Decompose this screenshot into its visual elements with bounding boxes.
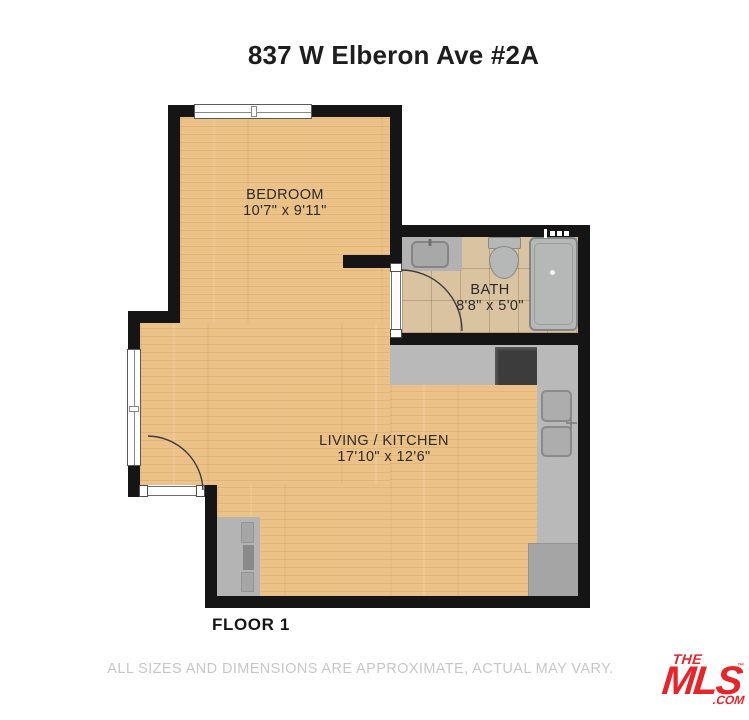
sofa-armrest-bottom <box>241 572 254 592</box>
refrigerator <box>528 543 578 596</box>
bath-sink-basin <box>411 241 449 268</box>
wall-step-vertical <box>205 485 217 608</box>
floor-plan-page: 837 W Elberon Ave #2A <box>0 0 749 720</box>
mls-logo: THE MLS ™ .COM <box>657 651 749 717</box>
bath-label: BATH 8'8" x 5'0" <box>420 283 560 314</box>
wall-bath-bottom <box>390 333 590 345</box>
trademark-icon: ™ <box>736 663 744 670</box>
kitchen-sink-basin-1 <box>541 390 572 422</box>
bedroom-floor-area <box>180 117 390 323</box>
bath-dimensions: 8'8" x 5'0" <box>420 299 560 315</box>
wall-right <box>578 225 590 608</box>
sofa-armrest-top <box>241 522 254 543</box>
disclaimer-text: ALL SIZES AND DIMENSIONS ARE APPROXIMATE… <box>0 661 749 677</box>
bedroom-dimensions: 10'7" x 9'11" <box>185 204 385 220</box>
bath-door-jamb-top <box>390 263 402 272</box>
living-window <box>127 349 141 466</box>
living-kitchen-label: LIVING / KITCHEN 17'10" x 12'6" <box>284 434 484 465</box>
entry-door-leaf <box>147 486 198 496</box>
bath-name: BATH <box>420 283 560 299</box>
wall-bedroom-left <box>168 105 180 323</box>
bedroom-label: BEDROOM 10'7" x 9'11" <box>185 188 385 219</box>
sofa <box>217 517 260 596</box>
bathtub-drain <box>550 270 555 275</box>
bath-door-jamb-bottom <box>390 329 402 338</box>
sofa-back-cushion <box>243 545 254 570</box>
stove-cooktop <box>495 347 537 385</box>
living-kitchen-name: LIVING / KITCHEN <box>284 434 484 450</box>
floor-label: FLOOR 1 <box>212 615 290 635</box>
mls-logo-com: .COM <box>712 693 745 707</box>
living-kitchen-dimensions: 17'10" x 12'6" <box>284 450 484 466</box>
entry-door-jamb-right <box>196 485 205 497</box>
entry-door-jamb-left <box>139 485 148 497</box>
floor-plan: BEDROOM 10'7" x 9'11" BATH 8'8" x 5'0" L… <box>0 0 749 720</box>
bedroom-name: BEDROOM <box>185 188 385 204</box>
kitchen-sink-basin-2 <box>541 426 572 457</box>
wall-bath-top <box>390 225 590 237</box>
bedroom-window <box>194 104 312 119</box>
bath-door-leaf <box>391 270 401 331</box>
wall-bottom <box>205 596 590 608</box>
